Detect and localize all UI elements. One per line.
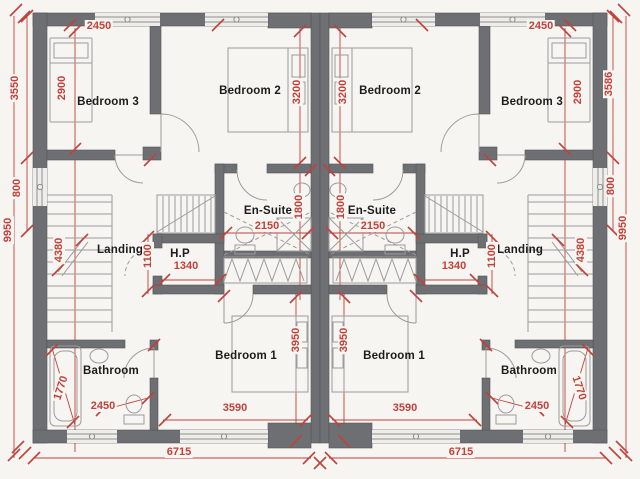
room-label-bathroom-left: Bathroom bbox=[83, 365, 139, 377]
dim-bedroom3-width-left: 2450 bbox=[85, 20, 113, 32]
dim-hotpress-width-left: 1340 bbox=[172, 260, 200, 272]
room-label-ensuite-left: En-Suite bbox=[244, 205, 292, 217]
dim-bedroom1-depth-right: 3950 bbox=[338, 326, 350, 354]
room-label-bedroom1-right: Bedroom 1 bbox=[363, 350, 425, 362]
floor-plan: Bedroom 3 Bedroom 2 En-Suite H.P Landing… bbox=[0, 0, 640, 479]
dim-overall-depth-right: 9950 bbox=[617, 214, 629, 242]
room-label-bedroom2-left: Bedroom 2 bbox=[219, 85, 281, 97]
room-label-bedroom2-right: Bedroom 2 bbox=[359, 85, 421, 97]
dim-landing-width-left: 1100 bbox=[142, 242, 154, 270]
dim-stair-window-right: 800 bbox=[605, 175, 617, 197]
dim-bedroom3-depth-left: 2900 bbox=[56, 74, 68, 102]
room-label-ensuite-right: En-Suite bbox=[348, 205, 396, 217]
dim-ensuite-width-right: 2150 bbox=[359, 220, 387, 232]
dim-bathroom-width-right: 2450 bbox=[523, 400, 551, 412]
room-label-hotpress-right: H.P bbox=[450, 248, 470, 260]
dim-bedroom1-width-left: 3590 bbox=[221, 402, 249, 414]
room-label-bedroom1-left: Bedroom 1 bbox=[215, 350, 277, 362]
dim-bedroom3-depth-right: 2900 bbox=[572, 78, 584, 106]
room-label-hotpress-left: H.P bbox=[170, 248, 190, 260]
dim-hotpress-width-right: 1340 bbox=[440, 260, 468, 272]
dim-front-depth-left: 3550 bbox=[9, 74, 21, 102]
dim-overall-depth-left: 9950 bbox=[2, 216, 14, 244]
room-label-landing-left: Landing bbox=[97, 244, 143, 256]
dim-stair-window-left: 800 bbox=[11, 177, 23, 199]
dim-bedroom3-width-right: 2450 bbox=[527, 20, 555, 32]
dim-unit-width-left: 6715 bbox=[165, 446, 193, 458]
dim-ensuite-depth-left: 1800 bbox=[293, 193, 305, 221]
room-label-bedroom3-left: Bedroom 3 bbox=[77, 96, 139, 108]
dim-ensuite-width-left: 2150 bbox=[253, 220, 281, 232]
room-label-bathroom-right: Bathroom bbox=[501, 365, 557, 377]
dim-landing-width-right: 1100 bbox=[486, 242, 498, 270]
dim-bedroom2-depth-right: 3200 bbox=[337, 78, 349, 106]
dim-bedroom1-width-right: 3590 bbox=[391, 402, 419, 414]
dim-stair-run-left: 4380 bbox=[53, 236, 65, 264]
dim-front-depth-right: 3586 bbox=[603, 70, 615, 98]
dim-unit-width-right: 6715 bbox=[447, 446, 475, 458]
room-label-bedroom3-right: Bedroom 3 bbox=[501, 96, 563, 108]
dim-ensuite-depth-right: 1800 bbox=[335, 193, 347, 221]
dim-bedroom2-depth-left: 3200 bbox=[291, 78, 303, 106]
room-label-landing-right: Landing bbox=[497, 244, 543, 256]
dim-stair-run-right: 4380 bbox=[575, 236, 587, 264]
dim-bedroom1-depth-left: 3950 bbox=[290, 326, 302, 354]
dim-bathroom-width-left: 2450 bbox=[89, 400, 117, 412]
